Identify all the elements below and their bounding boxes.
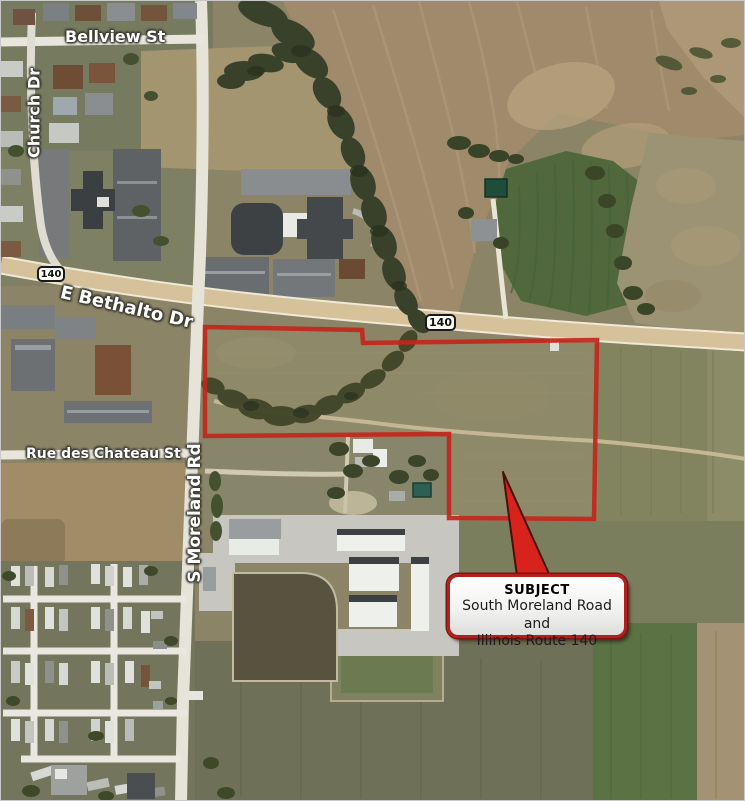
route-140-shield-west: 140 — [37, 266, 65, 282]
route-shield-label: 140 — [429, 316, 452, 329]
rue-des-chateau-road — [1, 453, 195, 455]
map-image — [1, 1, 745, 801]
aerial-map: Bellview St Church Dr E Bethalto Dr Rue … — [0, 0, 745, 801]
subject-callout: SUBJECT South Moreland Road and Illinois… — [447, 574, 627, 638]
route-shield-label: 140 — [41, 269, 62, 280]
callout-line2: Illinois Route 140 — [450, 633, 624, 651]
callout-title: SUBJECT — [450, 583, 624, 598]
route-140-shield-east: 140 — [425, 314, 456, 331]
callout-line1: South Moreland Road and — [450, 598, 624, 633]
